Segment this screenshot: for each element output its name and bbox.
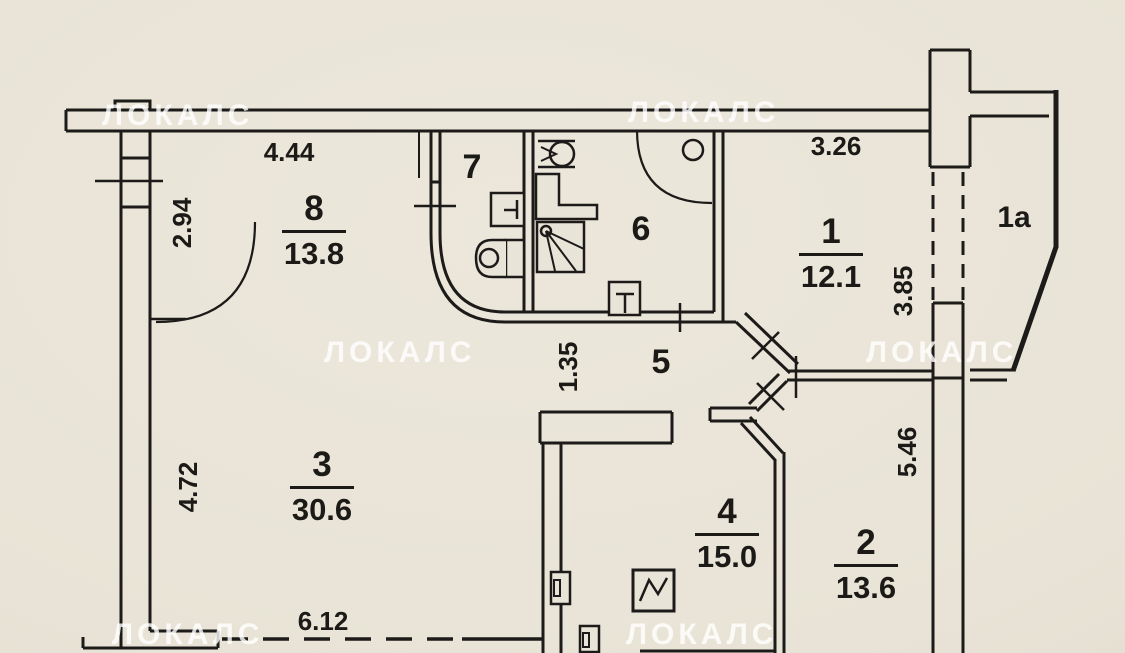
dim-6-12: 6.12 bbox=[298, 608, 349, 634]
room-3-label: 3 30.6 bbox=[290, 447, 354, 525]
fraction-line bbox=[834, 564, 898, 567]
duct-door2-icon bbox=[580, 626, 599, 652]
dim-3-85: 3.85 bbox=[890, 266, 916, 317]
room-3-area: 30.6 bbox=[292, 494, 352, 525]
room-6-label: 6 bbox=[632, 212, 651, 246]
room-2-area: 13.6 bbox=[836, 572, 896, 603]
dim-4-72: 4.72 bbox=[175, 462, 201, 513]
dim-1-35: 1.35 bbox=[555, 342, 581, 393]
vent-circle-icon bbox=[683, 140, 703, 160]
room-8-area: 13.8 bbox=[284, 238, 344, 269]
room-1a-label: 1a bbox=[997, 203, 1030, 233]
room-8-label: 8 13.8 bbox=[282, 191, 346, 269]
room-1-area: 12.1 bbox=[801, 261, 861, 292]
watermark: ЛОКАЛС bbox=[628, 98, 779, 128]
duct-door-icon bbox=[551, 572, 570, 604]
dim-3-26: 3.26 bbox=[811, 133, 862, 159]
watermark: ЛОКАЛС bbox=[102, 101, 253, 131]
towel-dryer-icon bbox=[609, 282, 640, 315]
room-5-label: 5 bbox=[652, 345, 671, 379]
room-4-number: 4 bbox=[717, 494, 736, 529]
dim-5-46: 5.46 bbox=[894, 427, 920, 478]
fraction-line bbox=[282, 230, 346, 233]
dashed-partition bbox=[933, 172, 963, 300]
fraction-line bbox=[799, 253, 863, 256]
floor-plan: 8 13.8 1 12.1 3 30.6 4 15.0 2 13.6 7 6 5… bbox=[0, 0, 1125, 653]
room-2-label: 2 13.6 bbox=[834, 525, 898, 603]
bath-sink-icon bbox=[538, 141, 575, 167]
floor-plan-drawing bbox=[0, 0, 1125, 653]
watermark: ЛОКАЛС bbox=[112, 620, 263, 650]
watermark: ЛОКАЛС bbox=[324, 338, 475, 368]
room-8-number: 8 bbox=[304, 191, 323, 226]
room-1-label: 1 12.1 bbox=[799, 214, 863, 292]
dim-2-94: 2.94 bbox=[169, 198, 195, 249]
fraction-line bbox=[695, 533, 759, 536]
room-4-label: 4 15.0 bbox=[695, 494, 759, 572]
door-arc-room6 bbox=[637, 130, 712, 203]
watermark: ЛОКАЛС bbox=[626, 620, 777, 650]
room-2-number: 2 bbox=[856, 525, 875, 560]
watermark: ЛОКАЛС bbox=[866, 338, 1017, 368]
room-1-number: 1 bbox=[821, 214, 840, 249]
bath-cabinet-icon bbox=[536, 174, 597, 219]
shower-icon bbox=[537, 222, 584, 272]
toilet-icon bbox=[476, 240, 524, 277]
dim-4-44: 4.44 bbox=[264, 139, 315, 165]
fraction-line bbox=[290, 486, 354, 489]
stove-icon bbox=[633, 570, 674, 611]
room-3-number: 3 bbox=[312, 447, 331, 482]
wc-sink-icon bbox=[491, 193, 524, 226]
room-4-area: 15.0 bbox=[697, 541, 757, 572]
room-7-label: 7 bbox=[463, 150, 482, 184]
